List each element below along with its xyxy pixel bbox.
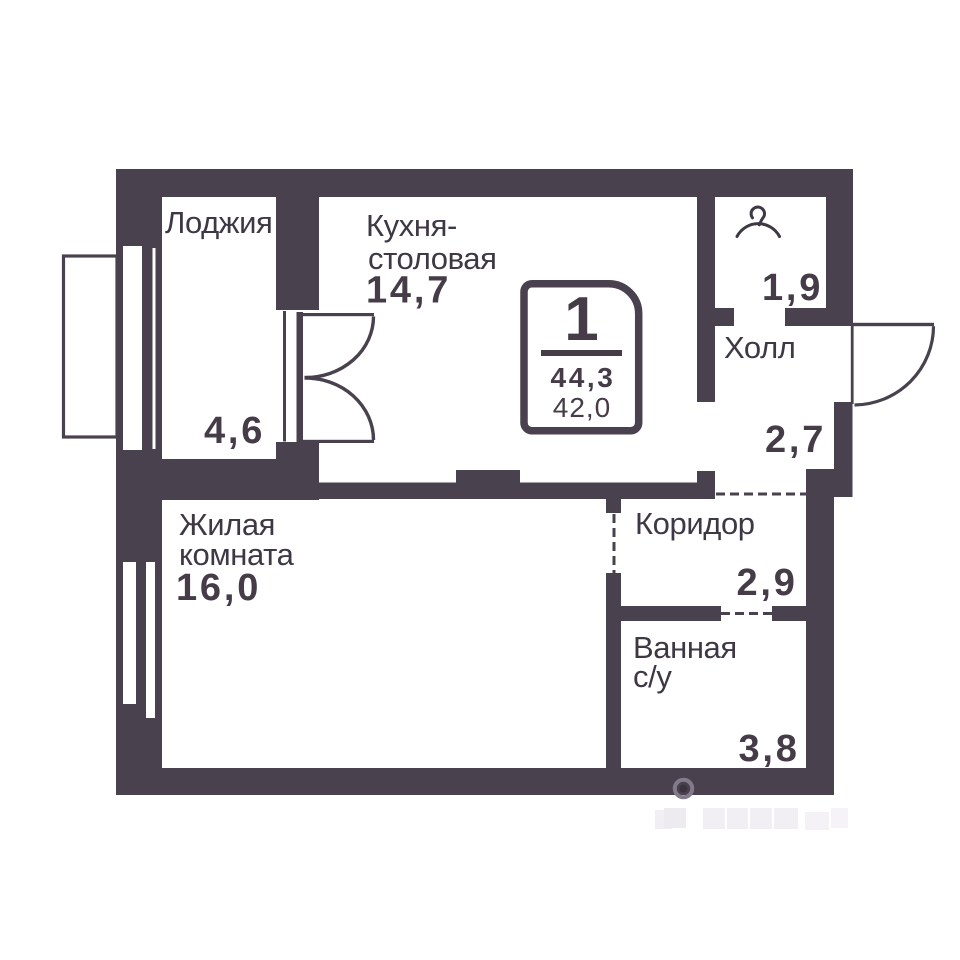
svg-text:4,6: 4,6	[204, 410, 265, 452]
svg-text:2,9: 2,9	[737, 562, 798, 604]
svg-text:3,8: 3,8	[739, 728, 800, 770]
svg-text:Лоджия: Лоджия	[165, 205, 272, 240]
svg-text:16,0: 16,0	[176, 567, 261, 609]
svg-text:с/у: с/у	[633, 659, 672, 694]
svg-text:Коридор: Коридор	[635, 506, 755, 541]
svg-text:1: 1	[564, 285, 598, 354]
svg-text:14,7: 14,7	[366, 270, 451, 312]
svg-text:1,9: 1,9	[762, 267, 823, 309]
svg-text:42,0: 42,0	[553, 392, 612, 423]
svg-text:Холл: Холл	[724, 330, 795, 365]
svg-text:44,3: 44,3	[551, 362, 616, 393]
svg-text:Кухня-: Кухня-	[366, 208, 457, 243]
svg-text:2,7: 2,7	[765, 419, 826, 461]
